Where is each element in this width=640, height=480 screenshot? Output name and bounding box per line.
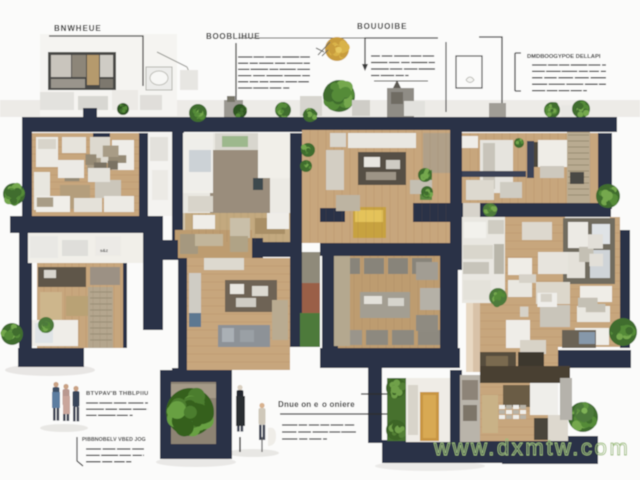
svg-text:www.dxmtw.com: www.dxmtw.com xyxy=(433,435,630,460)
svg-text:BOOBLIHUE: BOOBLIHUE xyxy=(206,32,260,41)
svg-text:DMDBOOGYPOE DELLAPI: DMDBOOGYPOE DELLAPI xyxy=(527,54,601,60)
svg-text:Dnue on e: Dnue on e xyxy=(278,400,319,409)
svg-text:BTVPAV'B THBLPIIU: BTVPAV'B THBLPIIU xyxy=(86,391,149,397)
svg-text:s&z: s&z xyxy=(100,248,109,253)
svg-text:o oniere: o oniere xyxy=(322,400,355,409)
svg-text:PIBBNOBELV VBED JOG: PIBBNOBELV VBED JOG xyxy=(82,437,146,443)
svg-text:BNWHEUE: BNWHEUE xyxy=(54,24,102,33)
svg-text:BOUUOIBE: BOUUOIBE xyxy=(357,22,407,31)
